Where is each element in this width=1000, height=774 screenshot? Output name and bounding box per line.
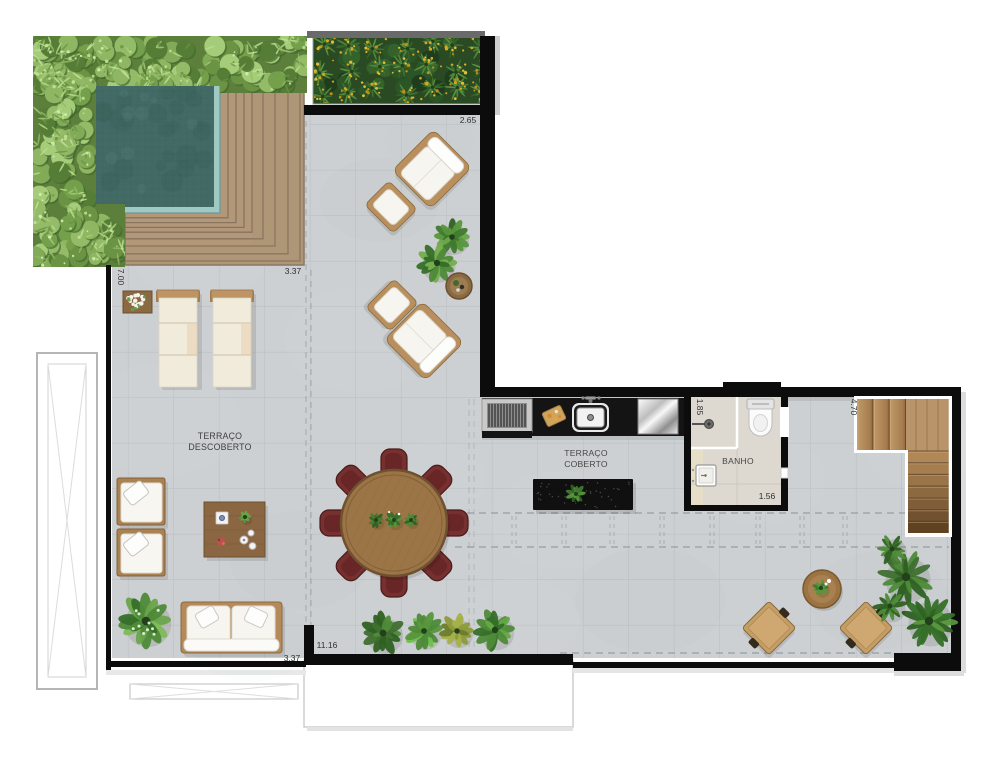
svg-text:7.00: 7.00	[116, 269, 126, 286]
svg-text:1.56: 1.56	[759, 491, 776, 501]
svg-text:TERRAÇO: TERRAÇO	[198, 431, 242, 441]
svg-text:11.16: 11.16	[317, 640, 338, 650]
svg-text:4.70: 4.70	[849, 399, 859, 416]
svg-text:COBERTO: COBERTO	[564, 459, 608, 469]
svg-text:2.65: 2.65	[460, 115, 477, 125]
svg-text:BANHO: BANHO	[722, 456, 754, 466]
svg-text:3.37: 3.37	[285, 266, 302, 276]
svg-text:1.85: 1.85	[695, 399, 705, 416]
svg-text:DESCOBERTO: DESCOBERTO	[188, 442, 251, 452]
svg-text:3.37: 3.37	[284, 653, 301, 663]
svg-text:TERRAÇO: TERRAÇO	[564, 448, 608, 458]
